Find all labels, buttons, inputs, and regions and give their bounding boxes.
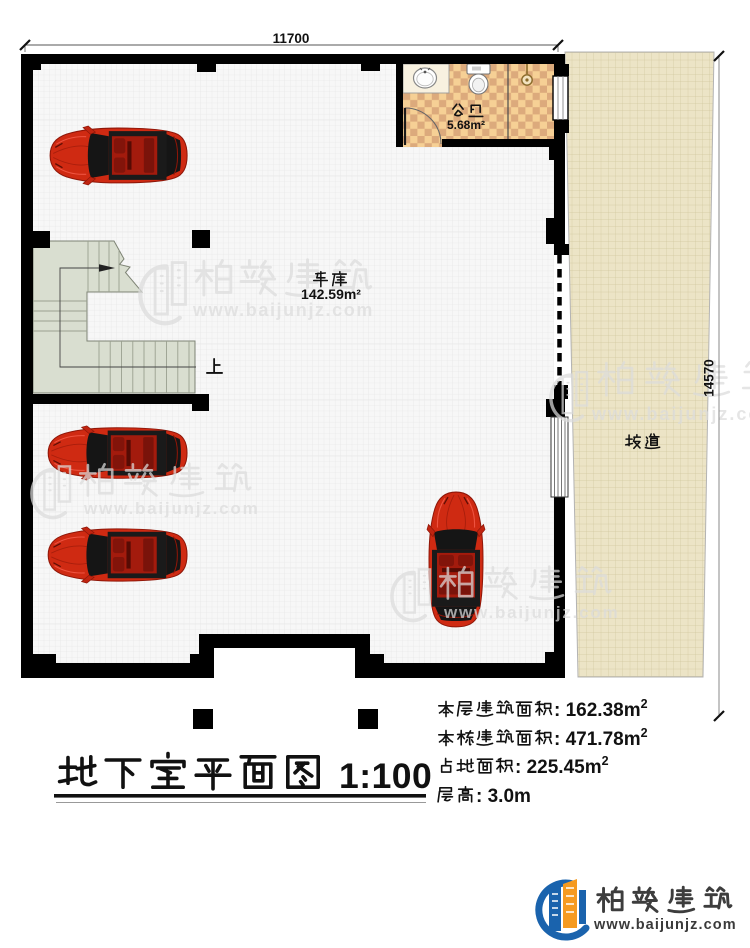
svg-text:www.baijunjz.com: www.baijunjz.com bbox=[192, 300, 374, 320]
svg-text:www.baijunjz.com: www.baijunjz.com bbox=[591, 404, 750, 424]
svg-text:11700: 11700 bbox=[273, 31, 310, 46]
svg-text:www.baijunjz.com: www.baijunjz.com bbox=[443, 603, 620, 622]
svg-text:www.baijunjz.com: www.baijunjz.com bbox=[83, 499, 260, 518]
svg-text:: 3.0m: : 3.0m bbox=[476, 786, 531, 807]
svg-text:: 162.38m2: : 162.38m2 bbox=[554, 697, 648, 721]
svg-text:142.59m²: 142.59m² bbox=[301, 286, 361, 302]
svg-text:5.68m²: 5.68m² bbox=[447, 118, 485, 132]
svg-text:1:100: 1:100 bbox=[339, 756, 432, 796]
svg-text:: 471.78m2: : 471.78m2 bbox=[554, 726, 648, 750]
svg-text:: 225.45m2: : 225.45m2 bbox=[515, 754, 609, 778]
svg-text:www.baijunjz.com: www.baijunjz.com bbox=[593, 917, 737, 933]
svg-text:14570: 14570 bbox=[702, 359, 717, 397]
